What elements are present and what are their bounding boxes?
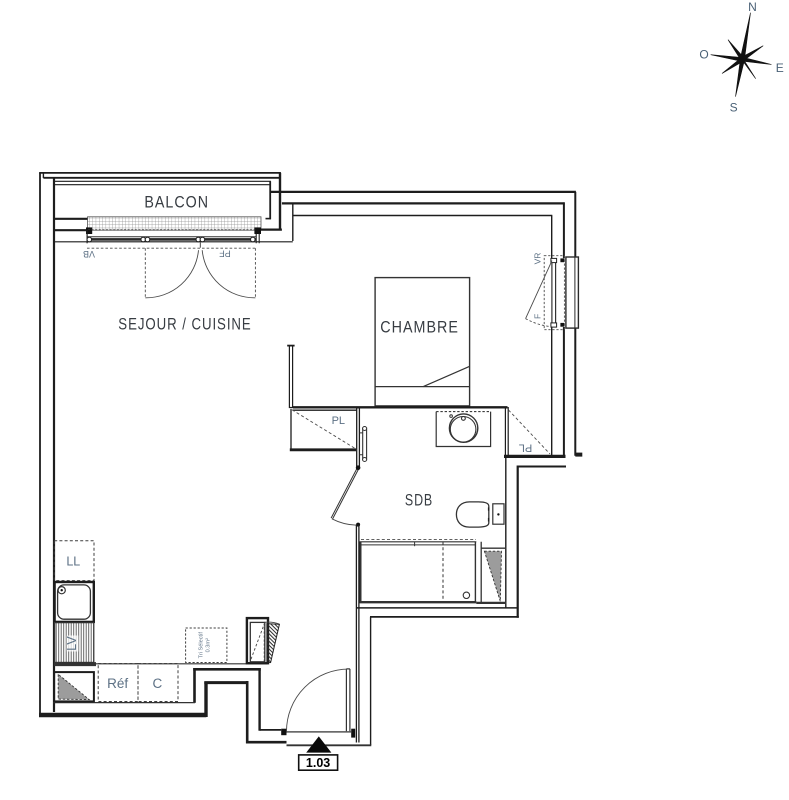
svg-text:VB: VB (83, 249, 95, 259)
svg-text:O: O (699, 48, 708, 62)
svg-text:LV: LV (65, 636, 79, 651)
svg-text:CHAMBRE: CHAMBRE (380, 318, 459, 337)
svg-text:N: N (748, 0, 757, 14)
svg-text:0.3m²: 0.3m² (206, 638, 212, 652)
svg-text:Réf: Réf (107, 676, 128, 691)
svg-text:PL: PL (332, 415, 345, 427)
svg-text:PL: PL (519, 442, 532, 454)
svg-text:SEJOUR / CUISINE: SEJOUR / CUISINE (118, 315, 251, 334)
svg-text:VR: VR (532, 253, 542, 265)
svg-text:F: F (532, 314, 542, 319)
svg-text:Tri Sélectif: Tri Sélectif (199, 632, 205, 659)
svg-text:C: C (153, 676, 163, 691)
svg-text:1.03: 1.03 (306, 756, 330, 770)
svg-text:PF: PF (219, 249, 231, 259)
svg-text:E: E (776, 61, 784, 75)
svg-text:S: S (730, 101, 738, 115)
svg-text:BALCON: BALCON (144, 193, 209, 212)
svg-text:SDB: SDB (405, 491, 433, 510)
svg-text:LL: LL (66, 555, 80, 569)
